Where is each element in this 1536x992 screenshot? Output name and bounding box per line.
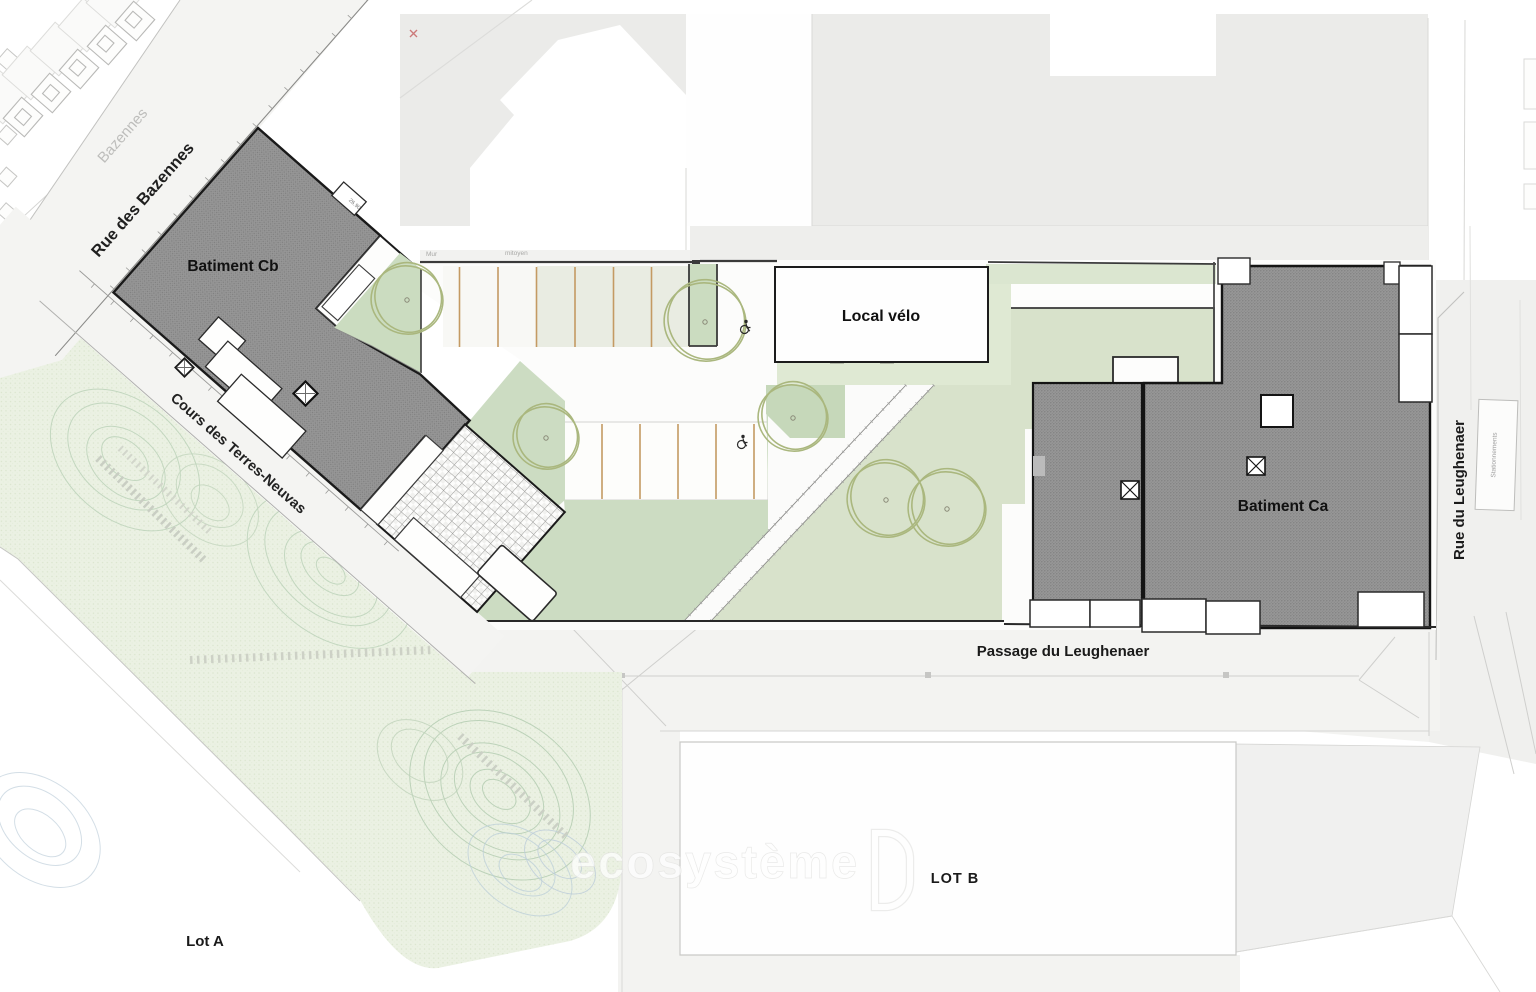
svg-text:Mur: Mur — [426, 251, 438, 258]
svg-text:Lot A: Lot A — [186, 933, 224, 950]
svg-text:Passage du Leughenaer: Passage du Leughenaer — [977, 643, 1150, 660]
svg-text:Batiment Ca: Batiment Ca — [1238, 498, 1329, 515]
svg-text:Rue du Leughenaer: Rue du Leughenaer — [1451, 420, 1468, 560]
svg-text:Batiment Cb: Batiment Cb — [187, 258, 278, 275]
svg-text:LOT B: LOT B — [931, 871, 980, 887]
svg-text:ecosystème: ecosystème — [570, 835, 859, 888]
svg-text:mitoyen: mitoyen — [505, 250, 528, 257]
svg-text:Local vélo: Local vélo — [842, 308, 920, 325]
